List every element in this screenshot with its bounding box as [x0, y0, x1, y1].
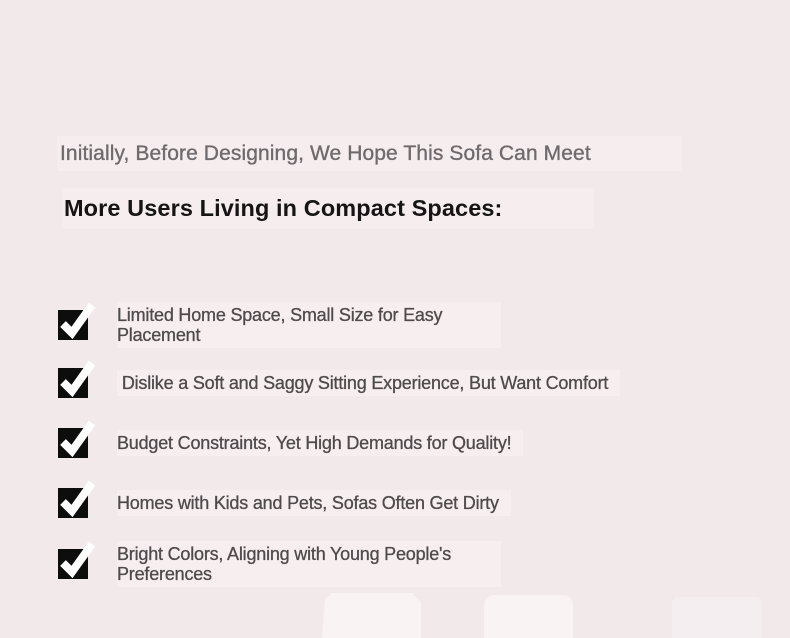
checklist-item: Homes with Kids and Pets, Sofas Often Ge… — [58, 481, 511, 525]
checklist-item-label: Homes with Kids and Pets, Sofas Often Ge… — [117, 490, 511, 516]
checked-checkbox-icon — [58, 310, 88, 340]
checklist-item-label: Dislike a Soft and Saggy Sitting Experie… — [117, 370, 620, 396]
checked-checkbox-icon — [58, 549, 88, 579]
bottom-card-shape — [672, 597, 762, 638]
checked-checkbox-icon — [58, 488, 88, 518]
bottom-card-shape — [322, 593, 421, 638]
title-line-2: More Users Living in Compact Spaces: — [62, 195, 502, 222]
checklist-item: Dislike a Soft and Saggy Sitting Experie… — [58, 361, 620, 405]
bottom-card-shape — [484, 595, 573, 638]
checklist-item-label: Bright Colors, Aligning with Young Peopl… — [117, 541, 501, 587]
checklist-item-label: Budget Constraints, Yet High Demands for… — [117, 430, 523, 456]
checked-checkbox-icon — [58, 428, 88, 458]
checklist-item-label: Limited Home Space, Small Size for Easy … — [117, 302, 501, 348]
checklist-item: Limited Home Space, Small Size for Easy … — [58, 302, 501, 348]
checklist-item: Budget Constraints, Yet High Demands for… — [58, 421, 523, 465]
slide-canvas: Initially, Before Designing, We Hope Thi… — [0, 0, 790, 638]
checklist-item: Bright Colors, Aligning with Young Peopl… — [58, 541, 501, 587]
subtitle-highlight-band: More Users Living in Compact Spaces: — [62, 188, 594, 229]
title-highlight-band: Initially, Before Designing, We Hope Thi… — [57, 136, 682, 171]
title-line-1: Initially, Before Designing, We Hope Thi… — [57, 142, 591, 166]
checked-checkbox-icon — [58, 368, 88, 398]
